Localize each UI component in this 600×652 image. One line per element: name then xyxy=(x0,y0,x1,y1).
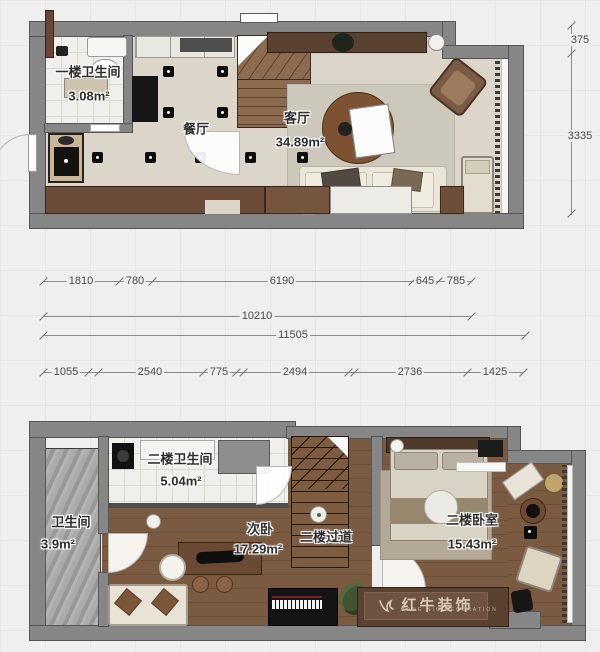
floorplan-canvas: 一楼卫生间 3.08m² 餐厅 客厅 34.89m² 375 3335 1810… xyxy=(0,0,600,652)
vdim-3335: 3335 xyxy=(566,130,594,142)
dim-11505: 11505 xyxy=(276,329,310,341)
stool-1 xyxy=(192,576,209,593)
shower-tray xyxy=(87,37,127,57)
entry-door-arc xyxy=(0,134,30,172)
bed-pillow-left xyxy=(394,452,438,470)
f1-wall-right xyxy=(509,46,523,228)
dim-780: 780 xyxy=(124,275,146,287)
bull-logo-icon xyxy=(378,598,396,614)
f1-wall-left xyxy=(30,22,45,228)
f2-wall-bottom xyxy=(30,626,585,640)
vanity-chair-seat xyxy=(526,504,540,518)
stool-black xyxy=(510,588,534,613)
wall-shelf xyxy=(180,38,232,52)
bathleft-wall-lower xyxy=(99,573,108,626)
f2-wall-top-a xyxy=(30,422,295,437)
dim-10210: 10210 xyxy=(240,310,275,322)
dim-6190: 6190 xyxy=(268,275,296,287)
bath1-door-leaf xyxy=(90,124,120,132)
vdim-375: 375 xyxy=(569,34,591,46)
room-label-living: 客厅 xyxy=(284,108,310,127)
dim-2540: 2540 xyxy=(136,366,164,378)
dim-line xyxy=(43,281,471,282)
f2-wall-left xyxy=(30,428,45,640)
watermark-subtext: HONG NIU DECORATION xyxy=(400,607,497,613)
wardrobe-f1 xyxy=(132,76,158,122)
desk-chair xyxy=(159,554,186,581)
dresser-black xyxy=(478,440,503,457)
spotlight xyxy=(217,107,228,118)
f2-wall-right xyxy=(572,451,585,640)
dim-2736: 2736 xyxy=(396,366,424,378)
piano-red-strip xyxy=(272,596,322,598)
room-label-master: 二楼卧室 xyxy=(446,510,498,529)
dim-775: 775 xyxy=(208,366,230,378)
nightstand-f1 xyxy=(440,186,464,214)
dim-2494: 2494 xyxy=(281,366,309,378)
bottom-cabinet-right xyxy=(265,186,330,214)
washer-drum xyxy=(117,450,129,462)
kettle xyxy=(58,136,74,145)
lamp-hall-dot xyxy=(317,513,321,517)
dim-1055: 1055 xyxy=(52,366,80,378)
dim-1425: 1425 xyxy=(481,366,509,378)
spotlight xyxy=(297,152,308,163)
room-area-bath1: 3.08m² xyxy=(68,89,109,104)
room-area-bathleft: 3.9m² xyxy=(41,537,75,552)
dim-1810: 1810 xyxy=(67,275,95,287)
dim-785: 785 xyxy=(445,275,467,287)
f1-wall-bottom xyxy=(30,214,523,228)
room-label-hallway: 二楼过道 xyxy=(300,527,352,546)
daybed-pillow xyxy=(465,160,490,174)
room-area-bathtop: 5.04m² xyxy=(160,474,201,489)
spotlight xyxy=(163,107,174,118)
stool-2 xyxy=(216,576,233,593)
table-decor xyxy=(338,122,352,136)
room-label-bathtop: 二楼卫生间 xyxy=(147,449,212,468)
room-label-bath1: 一楼卫生间 xyxy=(55,62,120,81)
bath1-faucet xyxy=(56,46,68,56)
room-label-bathleft: 卫生间 xyxy=(51,512,90,531)
ceiling-lamp-f1 xyxy=(428,34,445,51)
spotlight xyxy=(245,152,256,163)
table-paper xyxy=(349,103,396,158)
curtain-strip-f1 xyxy=(495,58,500,214)
room-area-living: 34.89m² xyxy=(276,135,324,150)
spotlight xyxy=(524,526,537,539)
watermark-plate: 红牛装饰 HONG NIU DECORATION xyxy=(364,592,488,620)
fridge xyxy=(330,186,412,214)
nightstand-lamp xyxy=(390,439,404,453)
spotlight xyxy=(145,152,156,163)
room-label-bedroom2: 次卧 xyxy=(247,519,273,538)
skylight-tab xyxy=(240,13,278,23)
room-area-master: 15.43m² xyxy=(448,537,496,552)
cooktop-dot xyxy=(64,159,68,163)
dim-645: 645 xyxy=(414,275,436,287)
window-top-master xyxy=(456,462,506,472)
spotlight xyxy=(217,66,228,77)
round-side-table-master xyxy=(544,473,564,493)
chimney-post xyxy=(45,10,54,58)
cabinet-notch xyxy=(205,200,240,214)
spotlight xyxy=(163,66,174,77)
spotlight xyxy=(92,152,103,163)
room-label-dining: 餐厅 xyxy=(183,119,209,138)
ceiling-lamp-bedroom2 xyxy=(146,514,161,529)
room-area-bedroom2: 17.29m² xyxy=(234,542,282,557)
piano-keys xyxy=(272,600,322,609)
window-strip-f2 xyxy=(567,465,573,623)
bathleft-wall-upper xyxy=(99,437,108,533)
plant-f1 xyxy=(332,33,354,52)
